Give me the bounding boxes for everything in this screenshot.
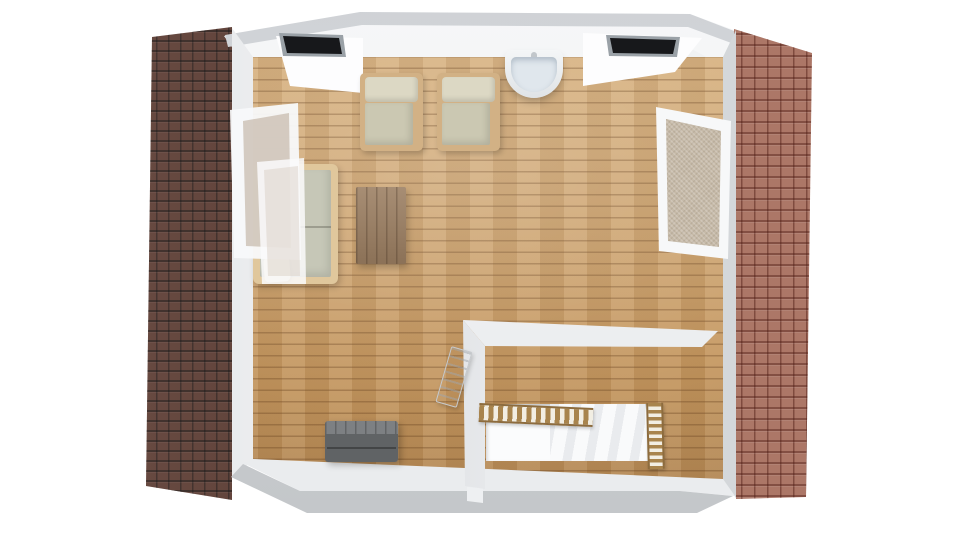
armchair-right[interactable] — [437, 73, 500, 151]
storage-chest[interactable] — [325, 421, 398, 462]
coffee-table[interactable] — [356, 187, 406, 264]
armchair-seat-cushion — [365, 103, 413, 145]
chest-lid — [325, 421, 398, 434]
armchair-back-cushion — [365, 77, 418, 102]
chest-seam — [327, 447, 396, 449]
armchair-back-cushion — [442, 77, 495, 102]
sink-bowl — [511, 57, 557, 92]
stair-railing[interactable] — [646, 403, 665, 469]
armchair-left[interactable] — [360, 73, 423, 151]
armchair-seat-cushion — [442, 103, 490, 145]
floorplan-3d-view — [0, 0, 960, 540]
